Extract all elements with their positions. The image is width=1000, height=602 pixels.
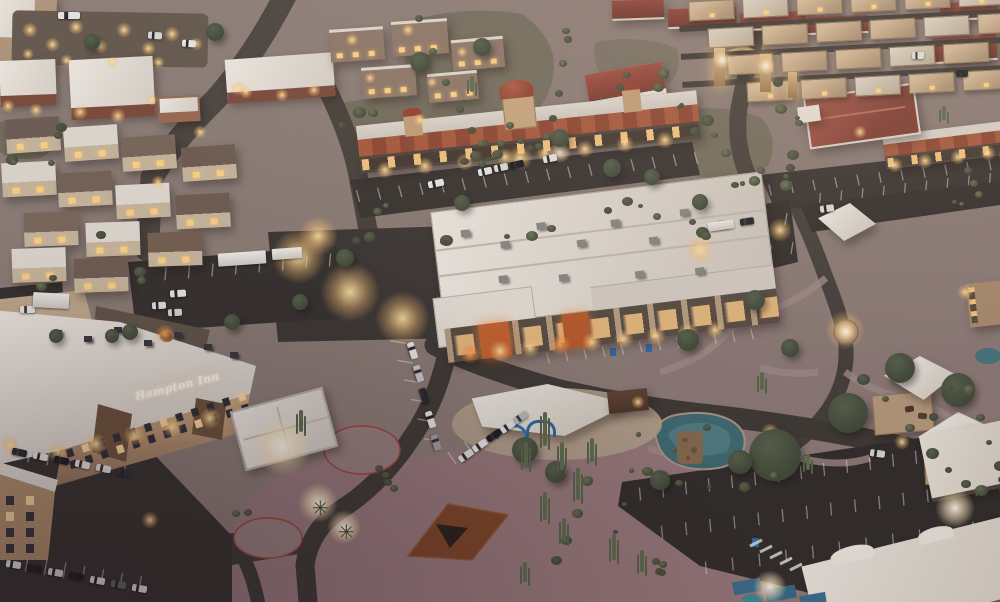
hotel-window [26, 528, 34, 537]
road-topleft [147, 0, 287, 250]
trailer-lot [128, 246, 344, 332]
parking-stripe [404, 380, 420, 383]
traffic-circle [834, 320, 858, 344]
parking-stripe [926, 181, 927, 191]
hotel-window [26, 496, 34, 505]
parking-stripe [947, 178, 948, 188]
parking-stripe [841, 191, 842, 201]
hotel-stone-accent [92, 404, 132, 462]
parking-stripe [968, 176, 969, 186]
hotel-window [26, 544, 34, 553]
parking-stripe [497, 421, 505, 432]
parking-stripe [820, 193, 821, 203]
retail-east-lot [692, 200, 798, 285]
parking-stripe [862, 188, 863, 198]
parking-stripe [639, 342, 642, 353]
parking-stripe [514, 410, 522, 421]
hotel-window [6, 528, 14, 537]
parking-stripe [397, 360, 413, 363]
parking-stripe [481, 431, 489, 442]
parking-stripe [602, 346, 605, 357]
hotel-window [6, 496, 14, 505]
waterfall-rock [677, 431, 703, 464]
aerial-photo-scene: Hampton Inn [0, 0, 1000, 602]
drive-island [324, 426, 400, 474]
parking-stripe [390, 341, 406, 344]
parking-stripe [883, 186, 884, 196]
ground-layer [0, 0, 1000, 602]
hotel-window [26, 512, 34, 521]
drive-island [234, 518, 302, 558]
parking-stripe [565, 351, 568, 362]
parking-stripe [424, 439, 440, 442]
parking-stripe [547, 353, 550, 364]
hotel-window [6, 544, 14, 553]
hotel-window [6, 512, 14, 521]
parking-stripe [621, 344, 624, 355]
parking-stripe [584, 348, 587, 359]
parking-stripe [905, 183, 906, 193]
parking-stripe [990, 173, 991, 183]
